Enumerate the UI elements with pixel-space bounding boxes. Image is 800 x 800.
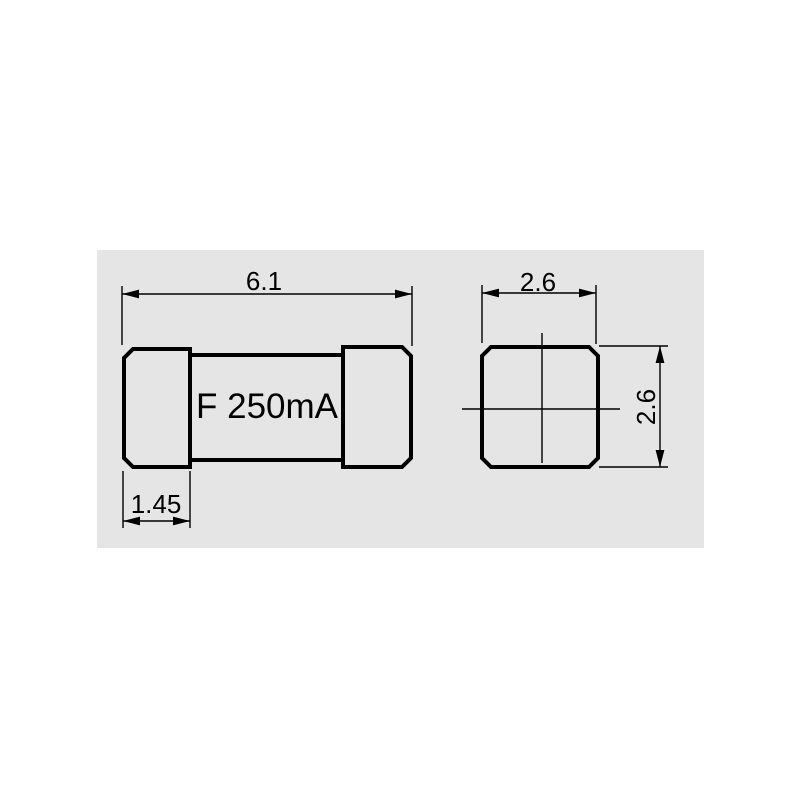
end-view-outline bbox=[482, 347, 598, 467]
dimension-label-end-height: 2.6 bbox=[631, 389, 661, 425]
page: F 250mA 6.1 1.45 bbox=[0, 0, 800, 800]
dimension-label-overall-length: 6.1 bbox=[246, 266, 282, 296]
fuse-cap-left bbox=[124, 349, 190, 467]
dimension-label-cap-length: 1.45 bbox=[131, 489, 182, 519]
fuse-marking-label: F 250mA bbox=[196, 387, 339, 426]
technical-drawing: F 250mA 6.1 1.45 bbox=[0, 0, 800, 800]
fuse-cap-right bbox=[343, 347, 411, 467]
dimension-label-end-width: 2.6 bbox=[520, 267, 556, 297]
